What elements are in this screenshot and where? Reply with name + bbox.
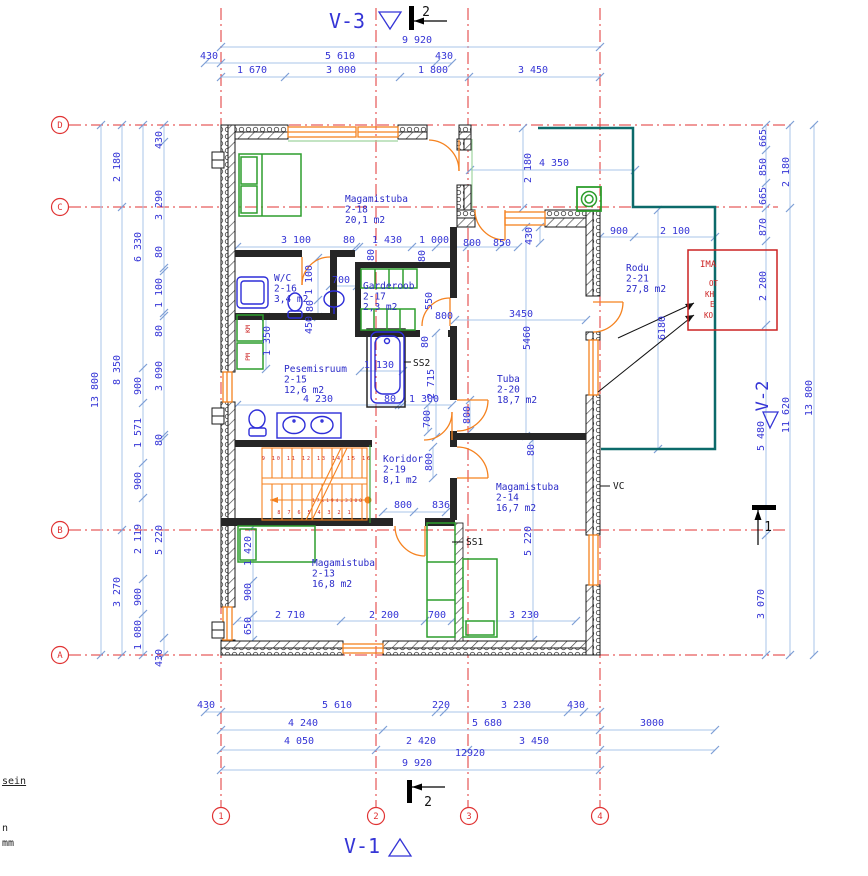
dim-label: 430: [524, 227, 535, 245]
dim-label: 2 180: [781, 157, 792, 187]
dim-label: 6180: [657, 316, 668, 340]
dim-label: 2 180: [523, 153, 534, 183]
dim-label: 1 571: [133, 418, 144, 448]
dim-label: 430: [154, 131, 165, 149]
floor-plan-canvas: DCBA1234 V-3V-1V-22219 9204305 6104301 6…: [0, 0, 868, 876]
stair-number: 8 7 6 5 4 3 2 1: [277, 510, 352, 516]
dim-label: 6 330: [133, 232, 144, 262]
dim-label: 11 620: [781, 397, 792, 433]
dim-label: 665: [758, 187, 769, 205]
dim-label: 3 290: [154, 190, 165, 220]
dim-label: 800: [463, 238, 481, 249]
room-label: Magamistuba: [345, 194, 408, 205]
dim-label: 836: [432, 500, 450, 511]
dim-label: 1 420: [243, 536, 254, 566]
room-label: 2-13: [312, 569, 335, 580]
dim-label: 80: [366, 249, 377, 261]
dim-label: 450: [304, 316, 315, 334]
room-label: Rodu: [626, 263, 649, 274]
appliance-label: PM: [244, 353, 252, 361]
section-number: 2: [422, 5, 430, 20]
room-label: 16,7 m2: [496, 503, 536, 514]
dim-label: 80: [526, 444, 537, 456]
dim-label: 665: [758, 129, 769, 147]
dim-label: 2 200: [369, 610, 399, 621]
revision-note-text: IMA: [700, 260, 717, 270]
dim-label: 8 350: [112, 355, 123, 385]
dim-label: 2 180: [112, 152, 123, 182]
grid-bubble-label: 2: [373, 812, 378, 822]
section-number: 2: [424, 795, 432, 810]
v3-triangle-icon: [379, 12, 401, 29]
room-label: 2,3 m2: [363, 302, 397, 313]
dim-label: 12920: [455, 748, 485, 759]
grid-bubble-label: D: [57, 121, 62, 131]
dim-label: 3 450: [519, 736, 549, 747]
annotation-label: SS1: [466, 537, 483, 548]
room-label: 3,4 m2: [274, 294, 308, 305]
legend-fragment: sein: [2, 776, 26, 787]
dim-label: 2 710: [275, 610, 305, 621]
dim-label: 2 119: [133, 524, 144, 554]
floor-plan-drawing: DCBA1234 V-3V-1V-22219 9204305 6104301 6…: [0, 0, 868, 876]
dim-label: 1 100: [304, 265, 315, 295]
room-label: 8,1 m2: [383, 475, 417, 486]
dim-label: 430: [197, 700, 215, 711]
dim-label: 4 240: [288, 718, 318, 729]
stair-number: 9 10 11 12 13 14 15 16: [262, 456, 372, 462]
dim-label: 1 130: [364, 360, 394, 371]
dim-label: 1 100: [154, 278, 165, 308]
shaft-hatch: [455, 523, 463, 641]
dim-label: 430: [567, 700, 585, 711]
room-label: 20,1 m2: [345, 215, 385, 226]
revision-note-text: KO: [704, 311, 714, 320]
dim-label: 700: [332, 275, 350, 286]
room-label: Koridor: [383, 454, 423, 465]
dim-label: 2 100: [660, 226, 690, 237]
dim-label: 80: [384, 394, 396, 405]
dim-label: 80: [420, 336, 431, 348]
dim-label: 80: [343, 235, 355, 246]
dim-label: 2 420: [406, 736, 436, 747]
dim-label: 3450: [509, 309, 533, 320]
annotation-label: VC: [613, 481, 624, 492]
room-label: 2-19: [383, 465, 406, 476]
grid-bubble-label: C: [57, 203, 62, 213]
room-label: 2-14: [496, 493, 519, 504]
dim-label: 4 350: [539, 158, 569, 169]
dim-label: 80: [154, 246, 165, 258]
dim-label: 3 100: [281, 235, 311, 246]
dim-label: 900: [133, 588, 144, 606]
dim-label: 3 070: [756, 589, 767, 619]
dim-label: 800: [424, 453, 435, 471]
section-number: 1: [764, 520, 772, 535]
dim-label: 430: [435, 51, 453, 62]
dim-label: 5 220: [154, 525, 165, 555]
dim-label: 900: [133, 377, 144, 395]
shower: [237, 277, 268, 308]
dim-label: 5 680: [472, 718, 502, 729]
appliance-label: KM: [244, 325, 252, 333]
room-label: 2-15: [284, 375, 307, 386]
revision-note-text: KH: [705, 290, 715, 299]
dim-label: 900: [610, 226, 628, 237]
legend-fragment: n: [2, 823, 8, 834]
grid-bubble-label: A: [57, 651, 63, 661]
dim-label: 900: [243, 583, 254, 601]
dim-label: 80: [154, 325, 165, 337]
view-label: V-2: [753, 381, 773, 412]
dim-label: 3 270: [112, 577, 123, 607]
dim-label: 850: [493, 238, 511, 249]
room-label: 2-16: [274, 284, 297, 295]
view-label: V-3: [329, 9, 365, 33]
room-label: W/C: [274, 273, 291, 284]
room-label: Magamistuba: [496, 482, 559, 493]
dim-label: 900: [133, 472, 144, 490]
windows: [223, 127, 598, 653]
dim-label: 700: [422, 410, 433, 428]
room-label: 2-18: [345, 205, 368, 216]
grid-lines: [69, 8, 792, 810]
revision-note-text: E: [710, 300, 715, 309]
dim-label: 3000: [640, 718, 664, 729]
revision-note-text: OT: [709, 279, 719, 288]
dim-label: 650: [243, 617, 254, 635]
dim-label: 3 230: [501, 700, 531, 711]
grid-bubble-label: 1: [218, 812, 223, 822]
room-label: 12,6 m2: [284, 385, 324, 396]
dim-label: 5460: [522, 326, 533, 350]
dim-label: 13 800: [804, 380, 815, 416]
dim-label: 1 800: [418, 65, 448, 76]
dim-label: 220: [432, 700, 450, 711]
grid-bubble-label: 3: [466, 812, 471, 822]
dim-label: 1 350: [262, 326, 273, 356]
room-label: 16,8 m2: [312, 579, 352, 590]
dim-label: 430: [154, 649, 165, 667]
vanity-double-sink: [277, 413, 341, 438]
room-label: 18,7 m2: [497, 395, 537, 406]
dim-label: 80: [154, 434, 165, 446]
dim-label: 2 200: [758, 271, 769, 301]
room-label: 2-21: [626, 274, 649, 285]
room-label: 27,8 m2: [626, 284, 666, 295]
room-label: Magamistuba: [312, 558, 375, 569]
view-label: V-1: [344, 834, 380, 858]
dim-label: 430: [200, 51, 218, 62]
legend-fragment: mm: [2, 838, 14, 849]
dim-label: 3 090: [154, 361, 165, 391]
stair-number: 17x194=3300: [312, 498, 364, 504]
room-label: 2-20: [497, 385, 520, 396]
dimension-lines: [97, 43, 818, 774]
exterior-walls: [221, 125, 600, 655]
dim-label: 800: [462, 406, 473, 424]
dim-label: 3 230: [509, 610, 539, 621]
dim-label: 5 220: [523, 526, 534, 556]
dim-label: 4 050: [284, 736, 314, 747]
dim-label: 80: [417, 250, 428, 262]
grid-bubble-label: B: [57, 526, 62, 536]
room-label: 2-17: [363, 292, 386, 303]
dim-label: 9 920: [402, 758, 432, 769]
dim-label: 1 670: [237, 65, 267, 76]
dim-label: 9 920: [402, 35, 432, 46]
dim-label: 550: [424, 292, 435, 310]
dim-label: 13 800: [90, 372, 101, 408]
dim-label: 3 450: [518, 65, 548, 76]
room-label: Garderoob: [363, 281, 415, 292]
dim-label: 870: [758, 218, 769, 236]
dim-label: 5 610: [325, 51, 355, 62]
dim-label: 3 000: [326, 65, 356, 76]
dim-label: 5 480: [756, 421, 767, 451]
toilet-pesemisruum: [249, 410, 266, 436]
room-label: Tuba: [497, 374, 520, 385]
dim-label: 1 080: [133, 620, 144, 650]
annotation-label: SS2: [413, 358, 430, 369]
room-label: Pesemisruum: [284, 364, 347, 375]
dim-label: 5 610: [322, 700, 352, 711]
v1-triangle-icon: [389, 839, 411, 856]
dim-label: 1 000: [419, 235, 449, 246]
dim-label: 800: [435, 311, 453, 322]
grid-bubble-label: 4: [597, 812, 602, 822]
dim-label: 700: [428, 610, 446, 621]
dim-label: 850: [758, 158, 769, 176]
dim-label: 800: [394, 500, 412, 511]
dim-label: 1 430: [372, 235, 402, 246]
dim-label: 1 300: [409, 394, 439, 405]
